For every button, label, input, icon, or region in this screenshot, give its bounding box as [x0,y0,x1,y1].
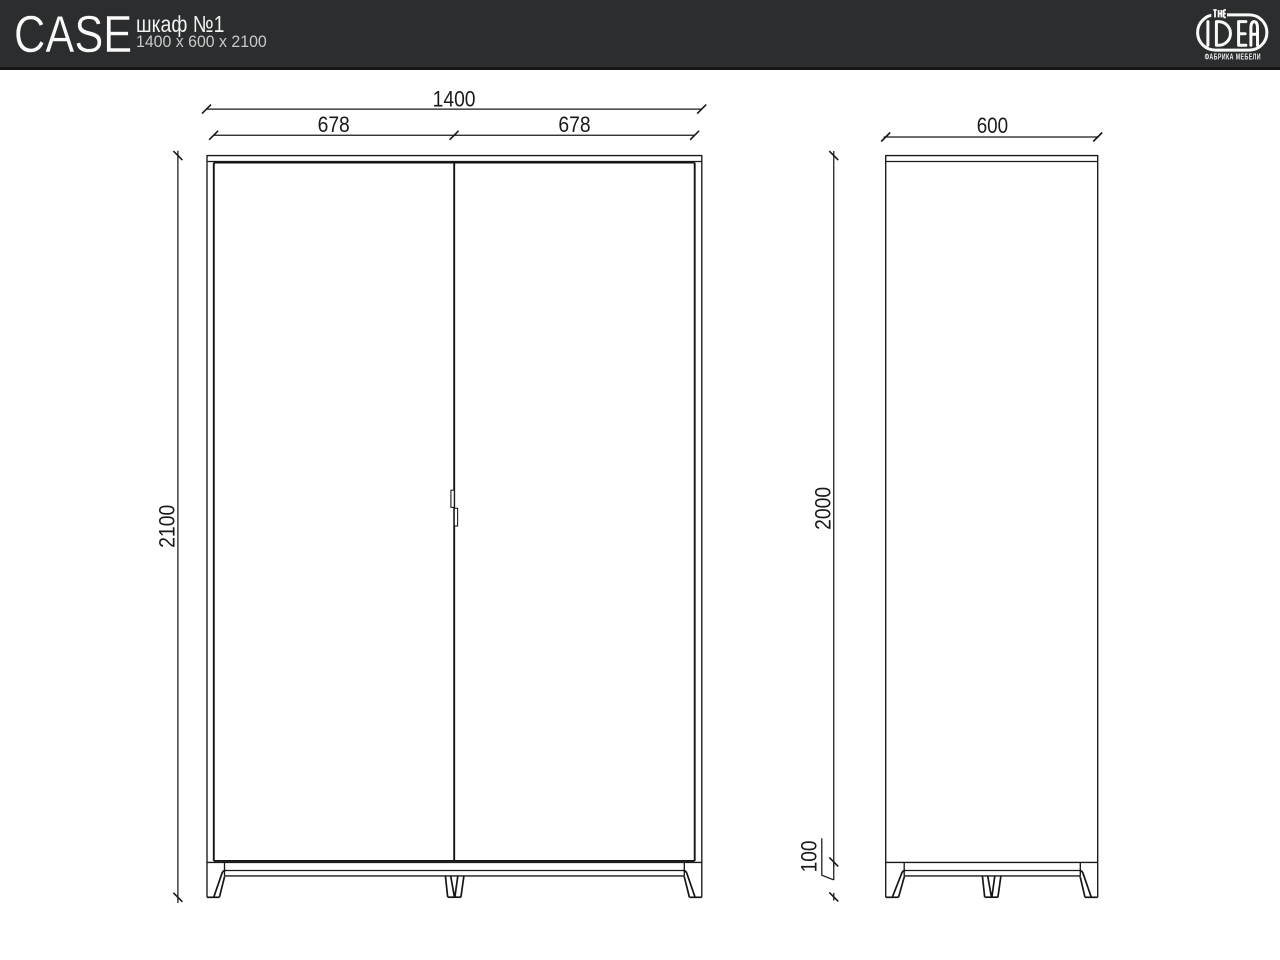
svg-text:100: 100 [796,840,821,872]
svg-text:2100: 2100 [154,505,179,548]
svg-text:678: 678 [558,112,590,137]
svg-text:2000: 2000 [811,487,836,530]
svg-text:1400: 1400 [433,86,476,111]
svg-text:600: 600 [977,113,1008,138]
svg-text:678: 678 [318,112,350,137]
